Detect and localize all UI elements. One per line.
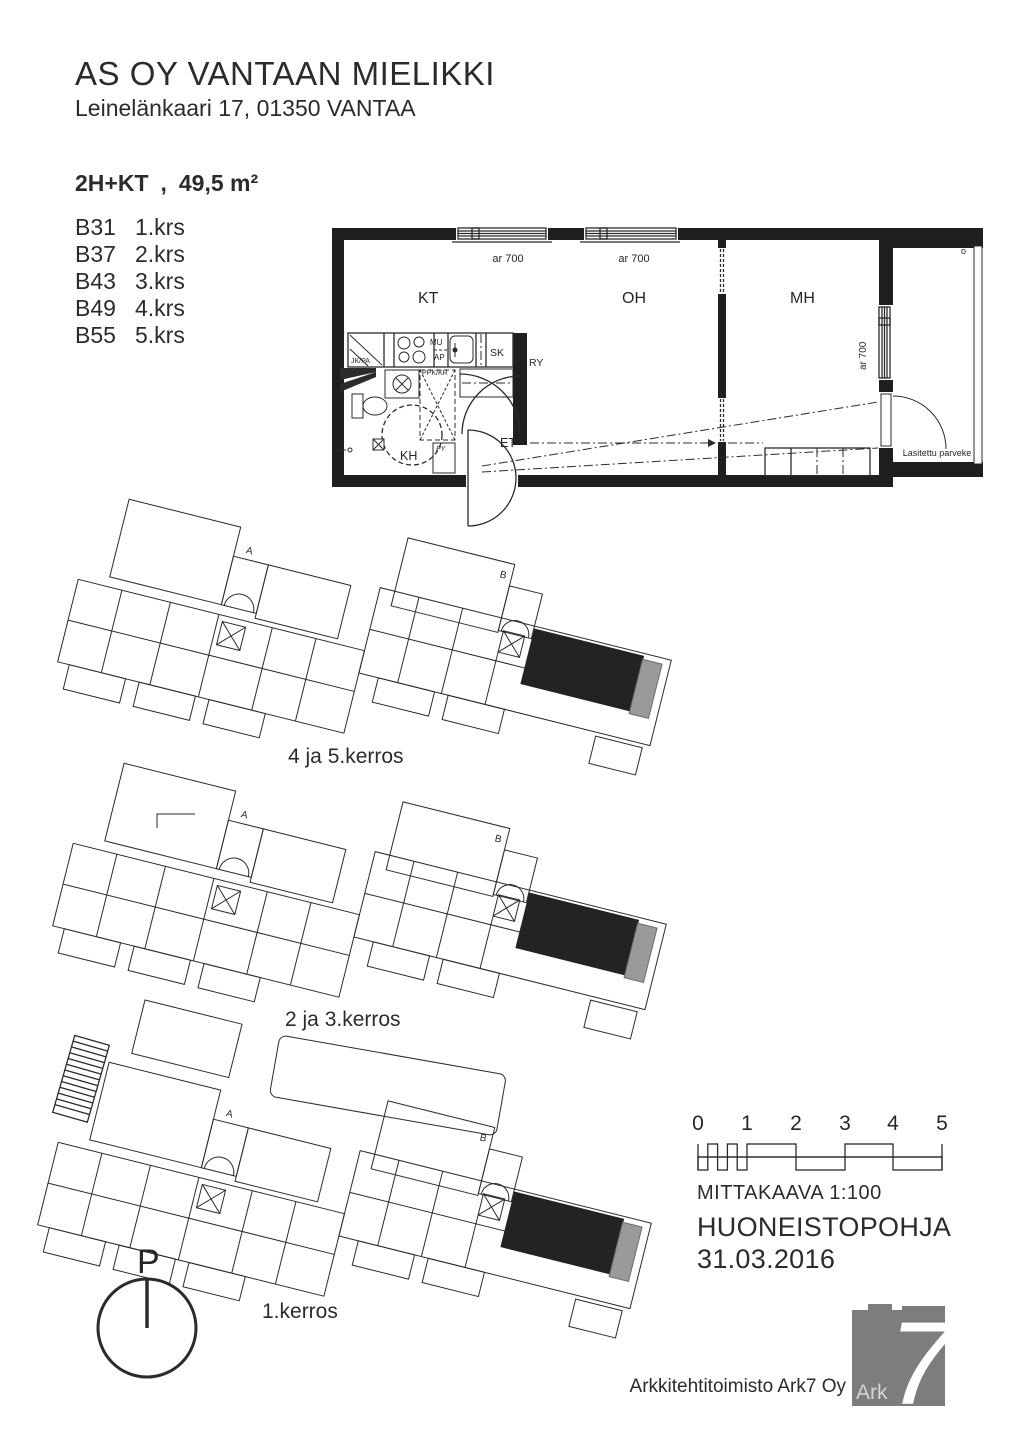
- window-size-label: ar 700: [618, 253, 649, 265]
- unit-id: B37: [75, 241, 135, 268]
- closet-label-ry: RY: [529, 357, 543, 369]
- balcony-door: [881, 394, 891, 446]
- scale-tick: 0: [692, 1112, 704, 1135]
- ark7-logo: 7 Ark: [852, 1298, 952, 1410]
- unit-floor: 5.krs: [135, 322, 185, 349]
- architect-firm: Arkkitehtitoimisto Ark7 Oy: [540, 1376, 846, 1398]
- unit-row: B37 2.krs: [75, 241, 185, 268]
- scale-bar-graphic: [698, 1144, 942, 1170]
- document-date: 31.03.2016: [697, 1244, 835, 1275]
- balcony-marker: o: [961, 246, 966, 256]
- room-label-mh: MH: [790, 290, 815, 307]
- document-type: HUONEISTOPOHJA: [697, 1212, 951, 1243]
- scale-tick: 5: [936, 1112, 948, 1135]
- toilet: [352, 394, 363, 418]
- balcony-label: Lasitettu parveke: [903, 448, 972, 458]
- project-address: Leinelänkaari 17, 01350 VANTAA: [75, 95, 416, 122]
- outbuilding: [269, 1035, 506, 1136]
- keyplan-caption: 2 ja 3.kerros: [285, 1008, 401, 1032]
- room-label-kh: KH: [400, 449, 417, 463]
- drawing-sheet: AS OY VANTAAN MIELIKKI Leinelänkaari 17,…: [0, 0, 1024, 1448]
- unit-id: B49: [75, 295, 135, 322]
- apartment-type-area: 2H+KT,49,5 m²: [75, 170, 258, 197]
- balcony-glazing: [974, 246, 982, 464]
- fixture-label-py: PY: [436, 446, 447, 453]
- fixture-label-jkpa: JK/PA: [351, 358, 370, 365]
- scale-caption: MITTAKAAVA 1:100: [697, 1182, 882, 1205]
- closet-label-sk: SK: [490, 347, 504, 359]
- bathroom-core: [336, 368, 513, 473]
- apartment-type: 2H+KT: [75, 170, 149, 196]
- stairwell-b-label: B: [479, 1132, 488, 1144]
- site-detail: [157, 814, 195, 828]
- room-label-et: ET: [500, 436, 516, 450]
- apartment-area: 49,5 m²: [179, 170, 258, 196]
- keyplan-caption: 1.kerros: [262, 1300, 338, 1324]
- unit-row: B55 5.krs: [75, 322, 185, 349]
- unit-list: B31 1.krs B37 2.krs B43 3.krs B49 4.krs …: [75, 214, 185, 349]
- separator: ,: [161, 170, 167, 196]
- balcony: [881, 246, 982, 464]
- reference-lines: [482, 402, 878, 472]
- balcony-door-swing: [893, 396, 946, 449]
- unit-floor: 3.krs: [135, 268, 185, 295]
- scale-tick: 4: [887, 1112, 899, 1135]
- unit-floor: 1.krs: [135, 214, 185, 241]
- stairwell-a-label: A: [225, 1108, 234, 1120]
- stairwell-a-label: A: [240, 809, 249, 821]
- stairwell-b-label: B: [494, 833, 503, 845]
- scale-bar: 0 1 2 3 4 5: [690, 1112, 965, 1182]
- window-size-label: ar 700: [492, 253, 523, 265]
- scale-tick: 1: [741, 1112, 753, 1135]
- project-title: AS OY VANTAAN MIELIKKI: [75, 55, 495, 93]
- north-label: P: [137, 1243, 160, 1281]
- wardrobe: [765, 448, 870, 476]
- room-label-oh: OH: [622, 290, 646, 307]
- logo-text: Ark: [856, 1381, 888, 1404]
- north-arrow: P: [85, 1235, 215, 1420]
- unit-row: B43 3.krs: [75, 268, 185, 295]
- unit-row: B49 4.krs: [75, 295, 185, 322]
- room-label-kt: KT: [418, 290, 439, 307]
- fixture-label-ap: AP: [434, 353, 445, 362]
- logo-numeral: 7: [888, 1298, 958, 1430]
- scale-tick: 2: [790, 1112, 802, 1135]
- stairwell-b-label: B: [499, 569, 508, 581]
- unit-id: B55: [75, 322, 135, 349]
- fixture-label-ppkkr: PPK/KR: [422, 370, 448, 377]
- entrance-ramp: [53, 1035, 110, 1122]
- unit-row: B31 1.krs: [75, 214, 185, 241]
- fixture-label-mu: MU: [430, 338, 443, 347]
- scale-tick: 3: [839, 1112, 851, 1135]
- unit-id: B31: [75, 214, 135, 241]
- unit-floor: 2.krs: [135, 241, 185, 268]
- unit-floor: 4.krs: [135, 295, 185, 322]
- window-size-label: ar 700: [858, 341, 869, 370]
- stairwell-a-label: A: [245, 545, 254, 557]
- unit-id: B43: [75, 268, 135, 295]
